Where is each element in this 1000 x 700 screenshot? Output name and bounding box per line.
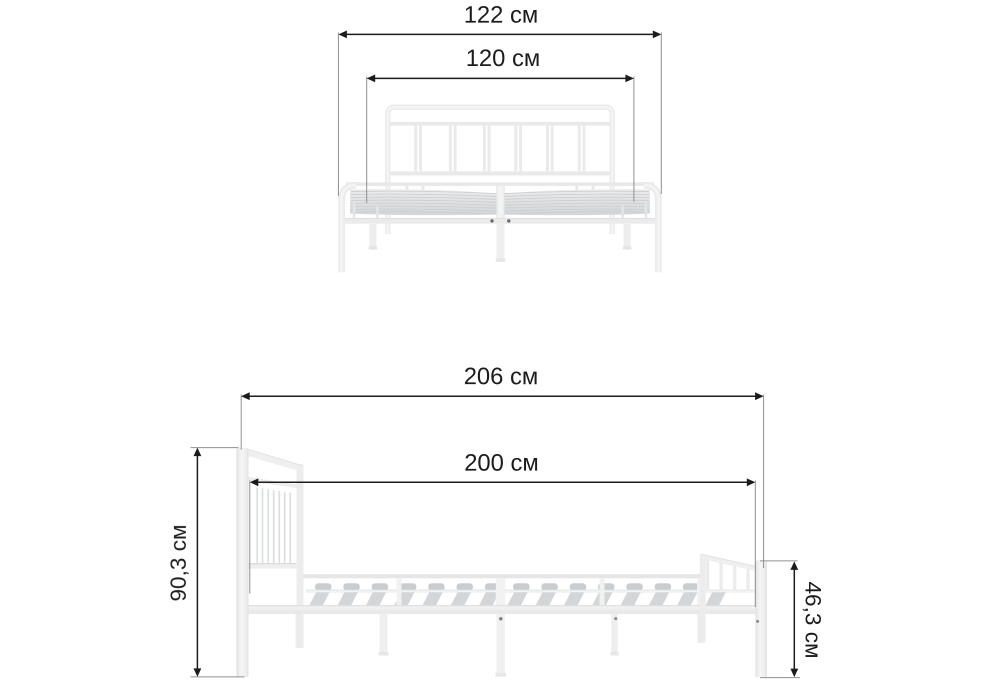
svg-text:90,3 см: 90,3 см [166, 524, 191, 601]
svg-text:200 см: 200 см [464, 450, 539, 477]
svg-text:120 см: 120 см [466, 45, 541, 72]
svg-text:206 см: 206 см [464, 363, 539, 390]
svg-text:46,3 см: 46,3 см [801, 581, 826, 658]
svg-text:122 см: 122 см [464, 2, 539, 29]
